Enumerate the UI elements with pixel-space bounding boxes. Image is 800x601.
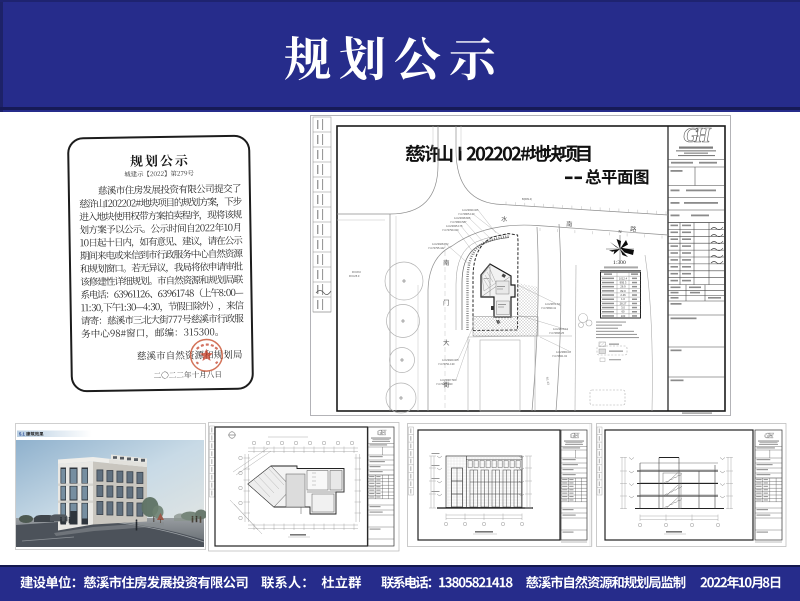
svg-text:28.27: 28.27 bbox=[620, 301, 627, 305]
svg-text:R=C8.0: R=C8.0 bbox=[352, 270, 361, 274]
svg-text:Y-C74785.320: Y-C74785.320 bbox=[436, 382, 453, 386]
svg-text:4-C23871.54: 4-C23871.54 bbox=[545, 302, 561, 306]
svg-text:4-C23930.325: 4-C23930.325 bbox=[462, 208, 479, 212]
svg-text:Y-C74830.41: Y-C74830.41 bbox=[541, 306, 557, 310]
svg-text:Y-C74836.25: Y-C74836.25 bbox=[549, 331, 565, 335]
svg-text:5.1: 5.1 bbox=[19, 432, 25, 437]
svg-text:R=C25.0: R=C25.0 bbox=[349, 274, 360, 278]
svg-text:4-C23935.175: 4-C23935.175 bbox=[446, 224, 463, 228]
svg-text:1.0: 1.0 bbox=[621, 297, 625, 301]
svg-text:4-C23860.10: 4-C23860.10 bbox=[556, 350, 572, 354]
svg-text:Y-C74800.587: Y-C74800.587 bbox=[450, 220, 467, 224]
svg-text:1:300: 1:300 bbox=[613, 260, 626, 266]
svg-text:4-C23938.825: 4-C23938.825 bbox=[454, 216, 471, 220]
svg-text:Y-C74805.130: Y-C74805.130 bbox=[458, 212, 475, 216]
svg-text:N: N bbox=[618, 229, 621, 234]
svg-text:Y-C74791.130: Y-C74791.130 bbox=[438, 362, 455, 366]
svg-text:4-C23878.13: 4-C23878.13 bbox=[553, 327, 569, 331]
svg-text:4-C23907.500: 4-C23907.500 bbox=[440, 378, 457, 382]
svg-text:100: 100 bbox=[621, 314, 626, 318]
svg-text:Y-C74799.320: Y-C74799.320 bbox=[442, 228, 459, 232]
svg-text:82.0: 82.0 bbox=[620, 289, 626, 293]
svg-text:Y-C74841.02: Y-C74841.02 bbox=[552, 354, 568, 358]
svg-text:Y-C74795.442: Y-C74795.442 bbox=[428, 246, 445, 250]
svg-text:B(609.4): B(609.4) bbox=[522, 197, 532, 201]
svg-text:4-C23928.072: 4-C23928.072 bbox=[432, 242, 449, 246]
svg-text:1012.4: 1012.4 bbox=[619, 276, 628, 280]
svg-text:26.9: 26.9 bbox=[620, 285, 626, 289]
svg-text:3.0: 3.0 bbox=[621, 306, 625, 310]
svg-text:2.46: 2.46 bbox=[620, 293, 626, 297]
svg-text:995.3: 995.3 bbox=[620, 281, 627, 285]
svg-text:4-C23920.325: 4-C23920.325 bbox=[442, 358, 459, 362]
svg-text:60: 60 bbox=[622, 310, 625, 314]
